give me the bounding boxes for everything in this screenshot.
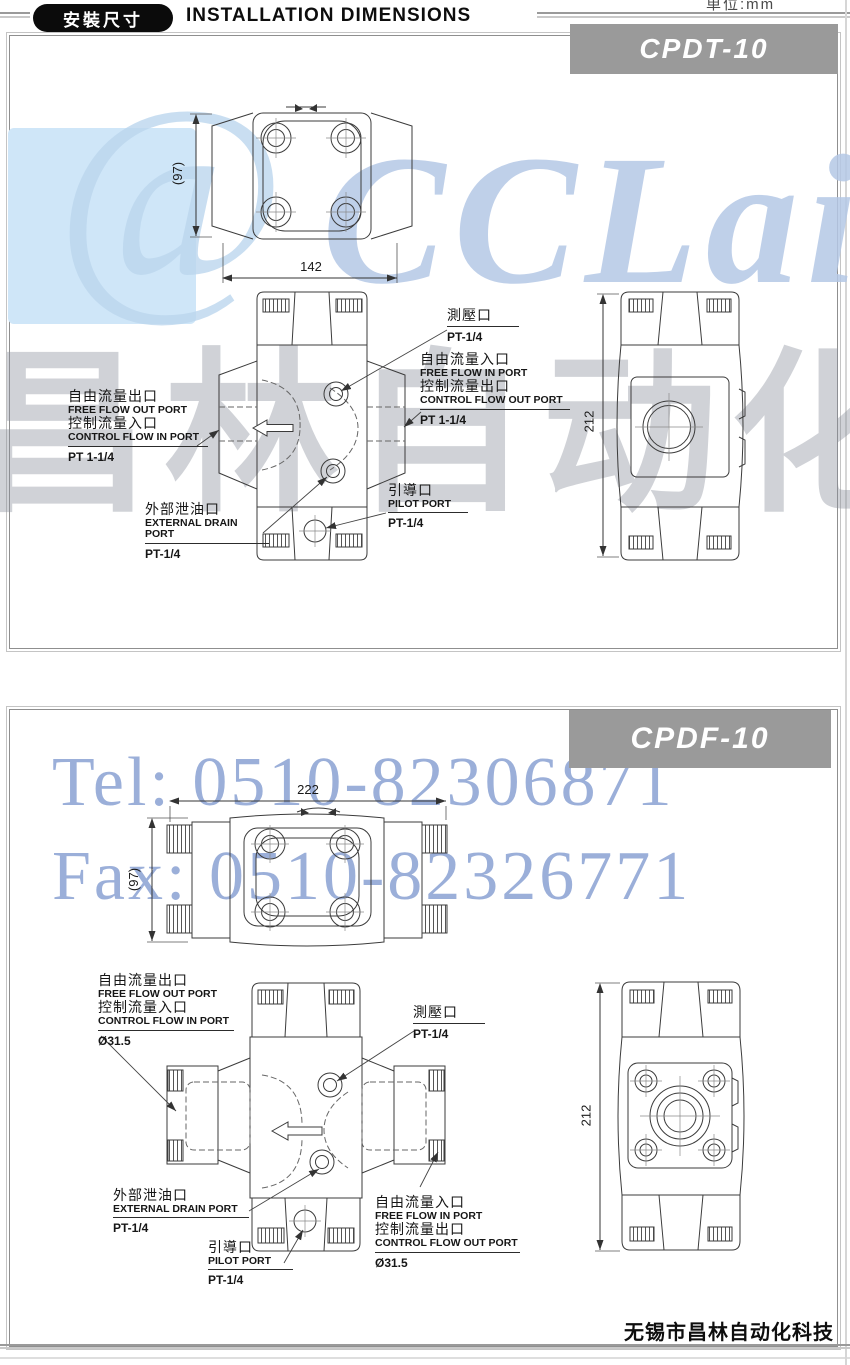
label-zh: 自由流量出口: [98, 973, 234, 989]
cpdt10-side-view: [617, 292, 745, 560]
label-port-size: PT 1-1/4: [420, 414, 570, 427]
label-en: EXTERNAL DRAIN PORT: [145, 518, 269, 542]
label-zh: 自由流量入口: [420, 352, 570, 368]
label-zh: 外部泄油口: [113, 1188, 249, 1204]
label-port-size: PT-1/4: [208, 1274, 293, 1287]
label-port-size: Ø31.5: [375, 1257, 520, 1270]
label-port-size: PT-1/4: [447, 331, 519, 344]
footer-rule-2: [0, 1347, 850, 1349]
dim-width-cpdt10: 142: [293, 259, 329, 274]
label-en: PILOT PORT: [388, 499, 468, 511]
technical-drawings: [0, 0, 850, 1365]
label-cpdf10-external-drain: 外部泄油口 EXTERNAL DRAIN PORT PT-1/4: [113, 1188, 249, 1236]
label-cpdf10-gauge-port: 測壓口 PT-1/4: [413, 1005, 485, 1041]
label-port-size: PT-1/4: [413, 1028, 485, 1041]
label-cpdf10-free-flow-in: 自由流量入口 FREE FLOW IN PORT 控制流量出口 CONTROL …: [375, 1195, 520, 1270]
cpdf10-top-view: [167, 808, 447, 946]
label-cpdf10-free-flow-out: 自由流量出口 FREE FLOW OUT PORT 控制流量入口 CONTROL…: [98, 973, 234, 1048]
label-cpdt10-free-flow-in: 自由流量入口 FREE FLOW IN PORT 控制流量出口 CONTROL …: [420, 352, 570, 427]
label-zh: 控制流量入口: [68, 416, 208, 432]
label-zh: 引導口: [208, 1240, 293, 1256]
label-en: PILOT PORT: [208, 1256, 293, 1268]
label-port-size: PT-1/4: [388, 517, 468, 530]
label-cpdt10-external-drain: 外部泄油口 EXTERNAL DRAIN PORT PT-1/4: [145, 502, 269, 562]
cpdt10-top-view: [212, 104, 412, 239]
dim-depth-cpdf10: (97): [126, 868, 141, 891]
label-zh: 控制流量出口: [420, 379, 570, 395]
label-en: CONTROL FLOW OUT PORT: [375, 1238, 520, 1250]
label-en: CONTROL FLOW IN PORT: [98, 1016, 234, 1028]
label-zh: 控制流量出口: [375, 1222, 520, 1238]
label-en: CONTROL FLOW OUT PORT: [420, 395, 570, 407]
label-port-size: Ø31.5: [98, 1035, 234, 1048]
catalog-page: 安裝尺寸 INSTALLATION DIMENSIONS 单位:mm CPDT-…: [0, 0, 850, 1365]
dim-height-cpdf10: 212: [578, 1105, 593, 1127]
label-port-size: PT-1/4: [113, 1222, 249, 1235]
dim-height-cpdt10: 212: [581, 411, 596, 433]
label-zh: 測壓口: [413, 1005, 485, 1021]
label-port-size: PT 1-1/4: [68, 451, 208, 464]
label-zh: 引導口: [388, 483, 468, 499]
label-port-size: PT-1/4: [145, 548, 269, 561]
label-en: EXTERNAL DRAIN PORT: [113, 1204, 249, 1216]
label-cpdt10-pilot-port: 引導口 PILOT PORT PT-1/4: [388, 483, 468, 531]
label-en: CONTROL FLOW IN PORT: [68, 432, 208, 444]
label-zh: 外部泄油口: [145, 502, 269, 518]
label-zh: 自由流量出口: [68, 389, 208, 405]
label-cpdf10-pilot-port: 引導口 PILOT PORT PT-1/4: [208, 1240, 293, 1288]
label-cpdt10-free-flow-out: 自由流量出口 FREE FLOW OUT PORT 控制流量入口 CONTROL…: [68, 389, 208, 464]
label-zh: 測壓口: [447, 308, 519, 324]
label-zh: 自由流量入口: [375, 1195, 520, 1211]
dim-width-cpdf10: 222: [290, 782, 326, 797]
footer-company-name: 无锡市昌林自动化科技: [624, 1316, 834, 1345]
label-cpdt10-gauge-port: 測壓口 PT-1/4: [447, 308, 519, 344]
dim-depth-cpdt10: (97): [170, 162, 185, 185]
label-zh: 控制流量入口: [98, 1000, 234, 1016]
cpdf10-side-view: [618, 982, 744, 1250]
